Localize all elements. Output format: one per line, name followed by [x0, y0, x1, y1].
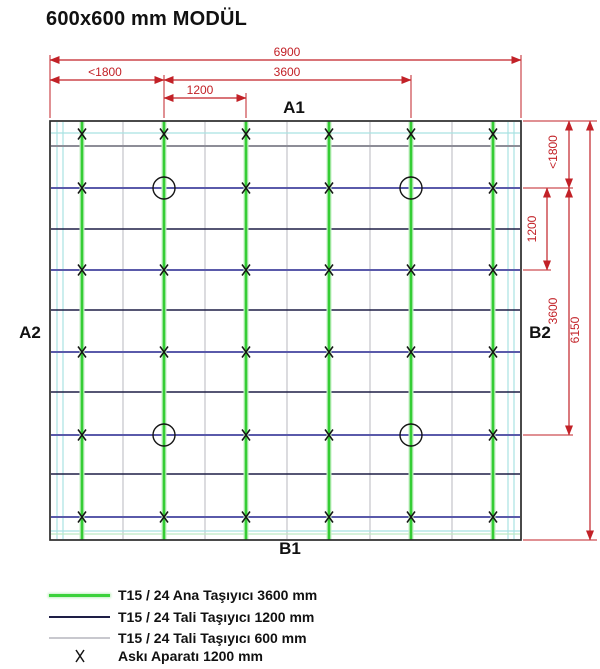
dimension-label: <1800 — [88, 65, 122, 79]
dimension-label: <1800 — [546, 135, 560, 169]
dimension-label: 6900 — [274, 45, 301, 59]
label-a1: A1 — [283, 98, 305, 118]
label-b1: B1 — [279, 539, 301, 559]
dimension-label: 1200 — [525, 215, 539, 242]
label-b2: B2 — [529, 323, 551, 343]
dimension-label: 6150 — [568, 316, 582, 343]
ceiling-plan-page: 600x600 mm MODÜL 6900<180036001200<18001… — [0, 0, 600, 669]
plan-border — [50, 121, 521, 540]
dimension-label: 3600 — [546, 297, 560, 324]
dimension-label: 3600 — [274, 65, 301, 79]
label-a2: A2 — [19, 323, 41, 343]
dimension-label: 1200 — [187, 83, 214, 97]
